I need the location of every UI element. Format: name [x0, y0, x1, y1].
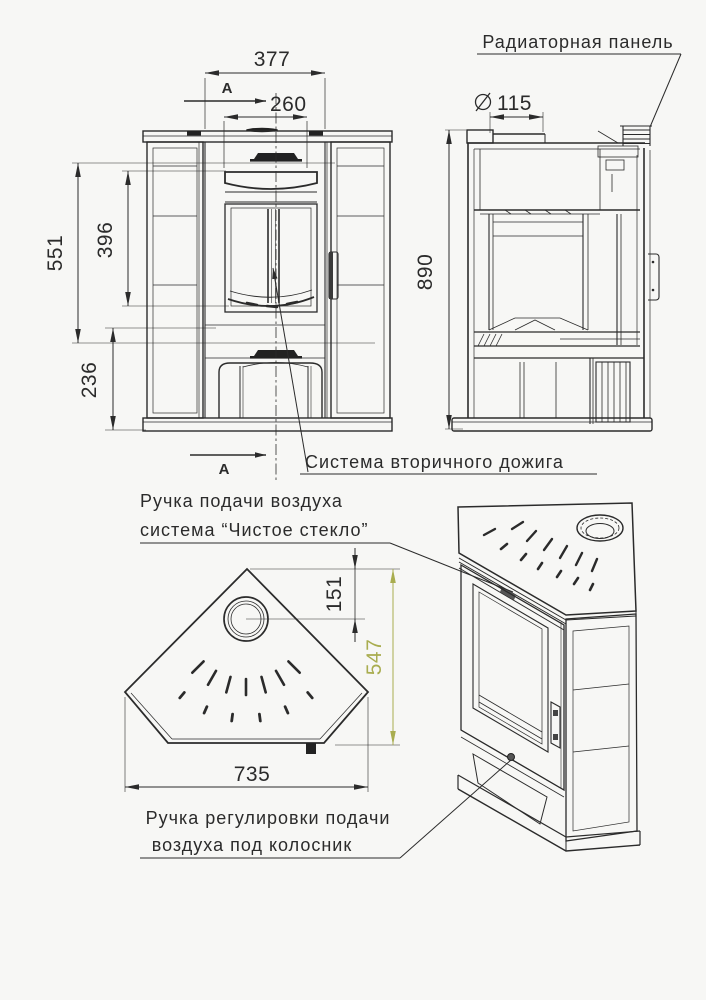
dim-377: 377	[254, 48, 291, 71]
drawing-canvas: 377 260 А А 551 396 236	[0, 0, 706, 1000]
dim-260: 260	[270, 93, 307, 116]
label-secondary-burn: Система вторичного дожига	[305, 452, 564, 472]
label-air-handle-2: система “Чистое стекло”	[140, 520, 368, 540]
iso-side-panel	[566, 614, 637, 841]
dim-890: 890	[414, 254, 437, 291]
technical-drawing-page: 377 260 А А 551 396 236	[0, 0, 706, 1000]
front-center-module	[205, 153, 338, 418]
dim-396: 396	[94, 222, 117, 259]
flue-collar-iso	[577, 515, 623, 541]
radiator-panel-fins	[620, 126, 652, 146]
section-letter-bottom: А	[219, 461, 230, 478]
top-vent-slots	[192, 661, 299, 695]
section-letter-top: А	[222, 80, 233, 97]
dim-735: 735	[234, 763, 271, 786]
dim-551: 551	[44, 235, 67, 272]
ash-door	[473, 754, 547, 824]
iso-vent-slots-small	[501, 544, 593, 590]
top-vent-slots-small	[180, 693, 312, 722]
label-grate-handle-1: Ручка регулировки подачи	[146, 808, 391, 828]
front-left-column	[147, 142, 205, 418]
dim-547: 547	[363, 639, 386, 676]
side-interior	[474, 131, 644, 424]
label-air-handle-1: Ручка подачи воздуха	[140, 491, 343, 511]
grate-air-knob	[508, 754, 515, 761]
dim-236: 236	[78, 362, 101, 399]
label-grate-handle-2: воздуха под колосник	[152, 835, 352, 855]
isometric-view	[458, 503, 640, 851]
diameter-symbol	[476, 93, 491, 111]
label-radiator-panel: Радиаторная панель	[482, 32, 673, 52]
dim-151: 151	[323, 576, 346, 613]
plan-handle-tab	[306, 743, 316, 754]
dim-flue-diameter: 115	[497, 92, 532, 115]
front-right-column	[325, 142, 390, 418]
front-view	[143, 93, 392, 480]
iso-door-handle	[551, 702, 560, 748]
side-view	[452, 126, 659, 431]
glass-door	[225, 204, 317, 312]
